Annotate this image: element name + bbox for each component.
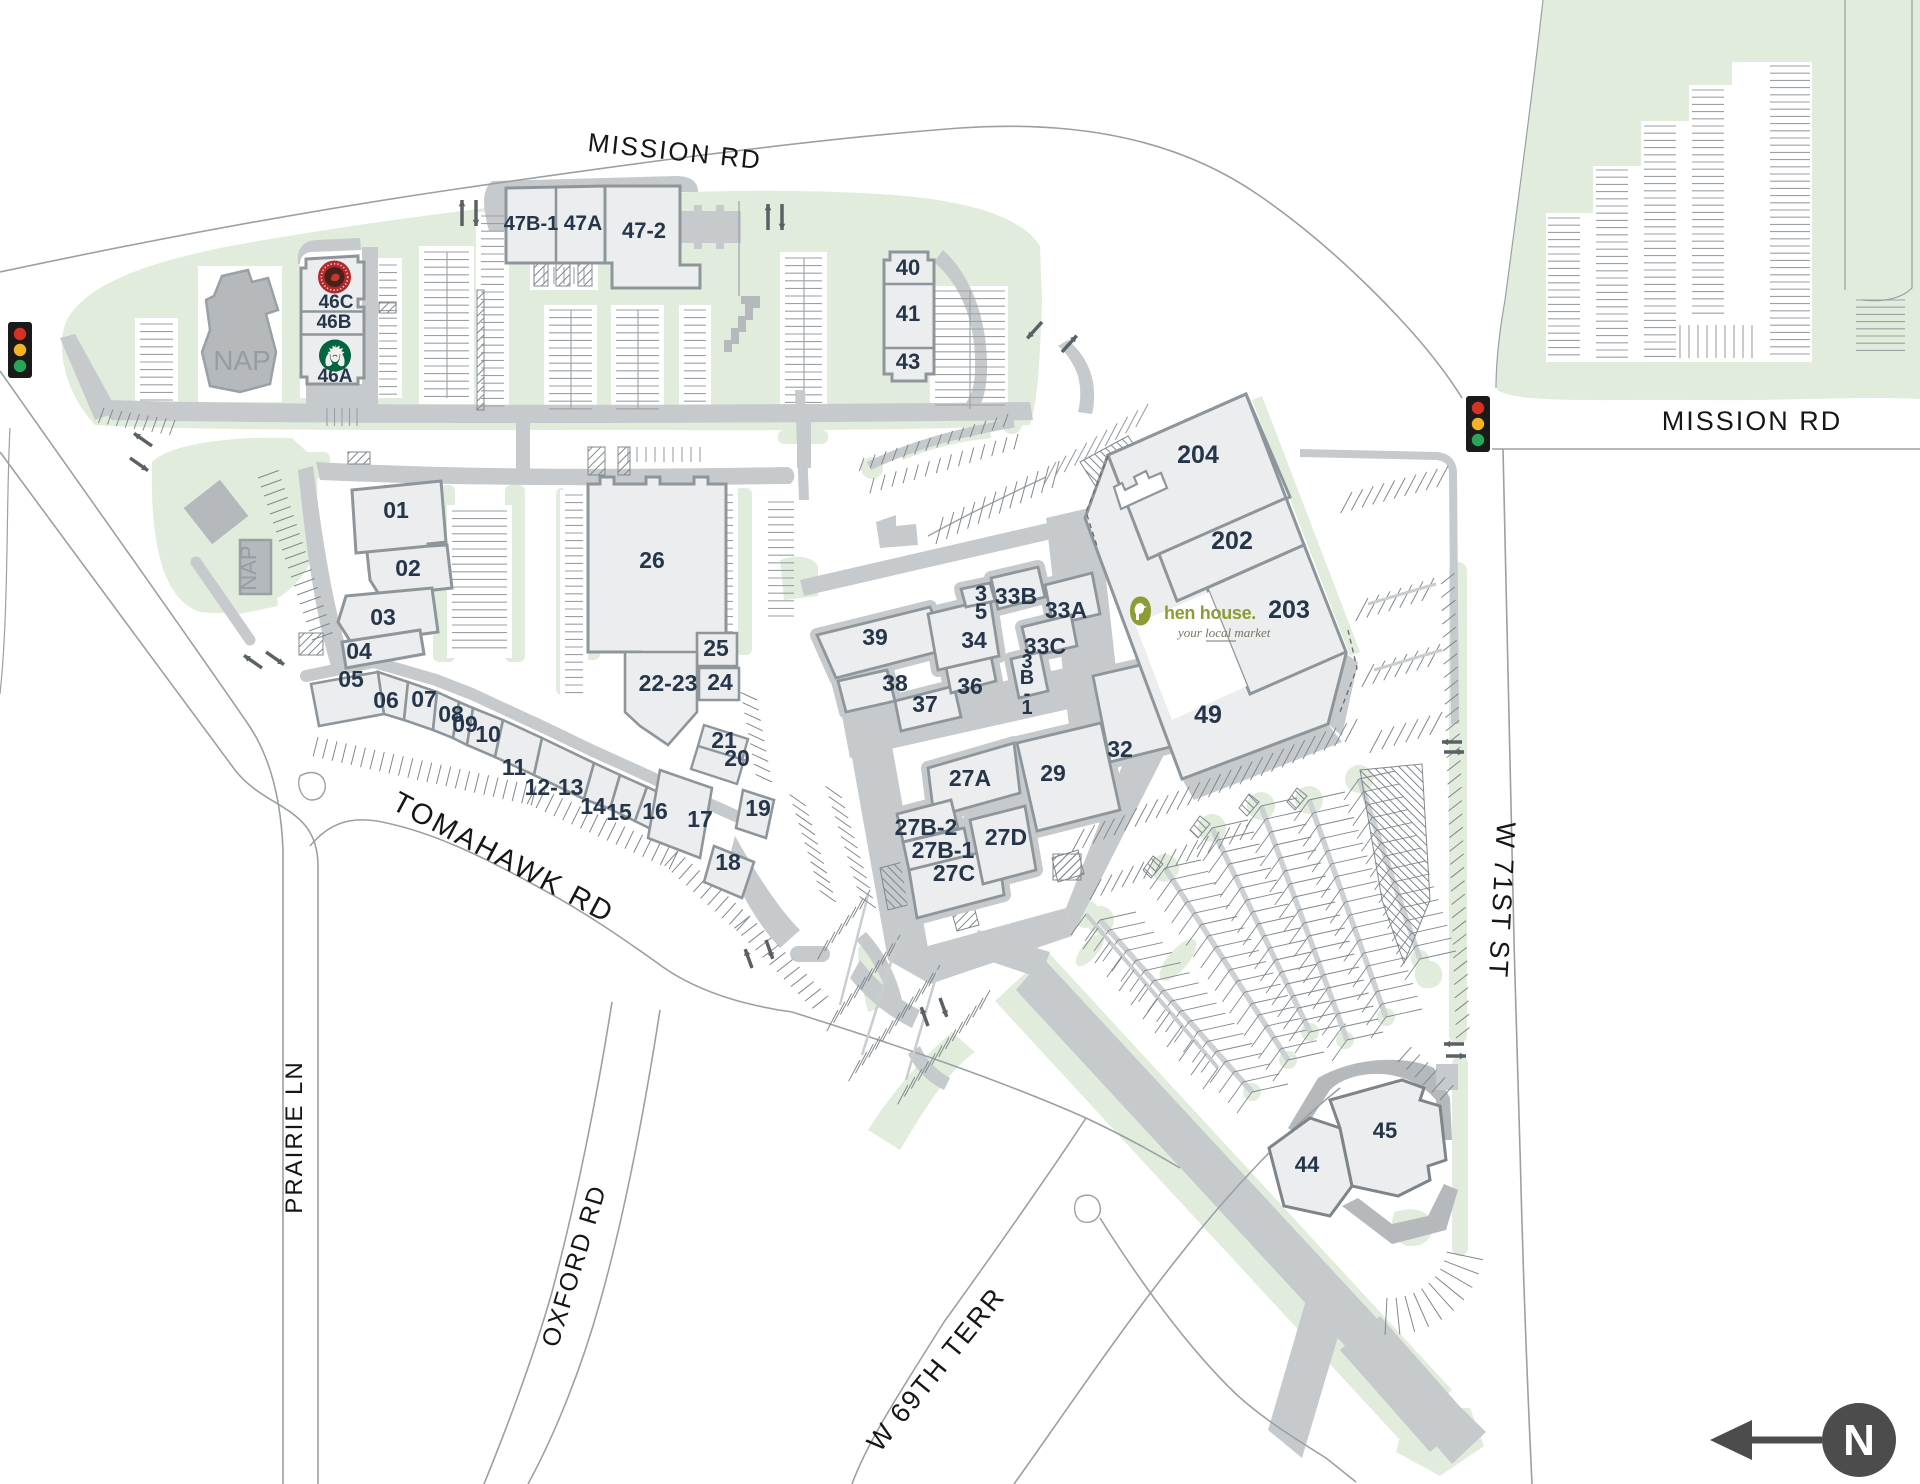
svg-text:25: 25 [703,635,729,661]
svg-text:05: 05 [338,666,364,692]
svg-text:32: 32 [1107,736,1133,762]
svg-text:5: 5 [975,599,987,624]
svg-text:43: 43 [896,349,920,374]
svg-text:33B: 33B [995,583,1037,609]
svg-text:27A: 27A [949,765,991,791]
svg-text:17: 17 [687,806,713,832]
svg-text:34: 34 [961,627,987,653]
svg-text:06: 06 [373,687,399,713]
svg-text:01: 01 [383,497,409,523]
svg-text:203: 203 [1268,596,1310,624]
svg-text:15: 15 [606,799,632,825]
svg-text:46C: 46C [319,292,354,313]
svg-text:39: 39 [862,624,888,650]
svg-text:27C: 27C [933,860,975,886]
svg-text:47A: 47A [564,212,603,235]
svg-text:NAP: NAP [213,345,271,376]
svg-text:14: 14 [580,793,606,819]
svg-text:11: 11 [502,754,527,780]
svg-text:29: 29 [1040,760,1066,786]
svg-text:19: 19 [745,795,771,821]
svg-text:16: 16 [642,798,668,824]
svg-text:38: 38 [882,670,908,696]
svg-text:46B: 46B [317,312,352,333]
svg-text:47B-1: 47B-1 [504,213,558,235]
svg-text:12-13: 12-13 [525,774,584,800]
svg-text:NAP: NAP [236,545,261,590]
svg-text:N: N [1843,1416,1875,1465]
svg-text:1: 1 [1021,697,1032,719]
svg-text:MISSION RD: MISSION RD [1662,406,1843,436]
svg-text:26: 26 [639,547,665,573]
svg-text:49: 49 [1194,701,1222,729]
svg-text:202: 202 [1211,527,1253,555]
svg-text:45: 45 [1373,1118,1397,1143]
svg-text:21: 21 [711,727,737,753]
svg-text:24: 24 [707,669,733,695]
svg-text:47-2: 47-2 [622,218,666,243]
svg-text:33A: 33A [1045,597,1087,623]
svg-text:your local market: your local market [1176,625,1271,640]
svg-text:02: 02 [395,555,421,581]
svg-text:04: 04 [346,638,372,664]
svg-text:204: 204 [1177,441,1219,469]
svg-text:PRAIRIE LN: PRAIRIE LN [281,1060,308,1213]
svg-text:44: 44 [1295,1152,1320,1177]
svg-text:18: 18 [715,849,741,875]
svg-text:37: 37 [912,691,938,717]
svg-text:07: 07 [411,686,437,712]
svg-text:03: 03 [370,604,396,630]
svg-text:22-23: 22-23 [639,670,698,696]
svg-text:36: 36 [957,673,983,699]
svg-text:hen house.: hen house. [1164,603,1256,623]
svg-text:27D: 27D [985,824,1027,850]
svg-text:40: 40 [896,255,920,280]
svg-text:09: 09 [452,711,478,737]
svg-text:41: 41 [896,301,920,326]
svg-text:10: 10 [475,721,501,747]
